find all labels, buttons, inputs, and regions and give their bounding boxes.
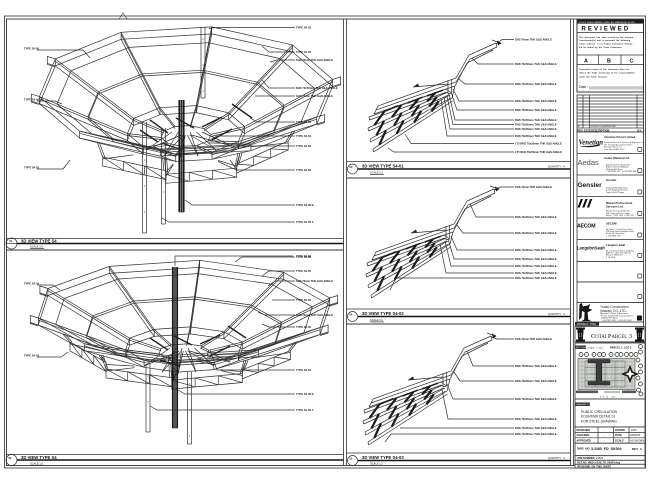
svg-text:SCALE 1:5: SCALE 1:5 [30, 461, 43, 465]
svg-text:DRAWING TITLE: DRAWING TITLE [576, 403, 594, 406]
svg-text:3D VIEW TYPE S4: 3D VIEW TYPE S4 [21, 238, 57, 243]
svg-text:Macau T 2837 2623 F 2837 2: Macau T 2837 2623 F 2837 2621 [606, 215, 635, 217]
svg-text:TYPE S4-05 A: TYPE S4-05 A [296, 220, 314, 224]
svg-text:4: 4 [599, 354, 600, 356]
svg-text:Gensler: Gensler [606, 178, 617, 182]
svg-text:Aedas: Aedas [578, 158, 600, 167]
svg-text:5: 5 [603, 354, 604, 356]
svg-text:RHS 70x50mm THK G&S ANGLE: RHS 70x50mm THK G&S ANGLE [515, 426, 557, 430]
svg-text:(Macau) CO. LTD.: (Macau) CO. LTD. [600, 309, 627, 313]
svg-text:Venetian Orient Limited: Venetian Orient Limited [604, 135, 636, 139]
svg-text:RHS 70x50mm THK G&S ANGLE: RHS 70x50mm THK G&S ANGLE [515, 127, 557, 131]
svg-text:SCALE 1:2: SCALE 1:2 [370, 462, 383, 466]
svg-text:SHS 70mm THK G&S ANGLE: SHS 70mm THK G&S ANGLE [296, 313, 333, 317]
svg-text:A: A [584, 59, 588, 65]
svg-text:03: 03 [349, 165, 352, 169]
svg-text:TYPE S4-04: TYPE S4-04 [296, 134, 311, 138]
svg-text:RHS 70x50mm THK G&S ANGLE: RHS 70x50mm THK G&S ANGLE [515, 99, 557, 103]
svg-text:TYPE S4-05 B: TYPE S4-05 B [296, 392, 314, 396]
svg-text:RHS 70x50mm THK G&S ANGLE: RHS 70x50mm THK G&S ANGLE [515, 62, 557, 66]
svg-text:Consultant(s)(s) and is acc: Consultant(s)(s) and is accorded the fol… [579, 39, 631, 42]
svg-text:04/03/15: 04/03/15 [630, 433, 641, 437]
svg-text:SCALE 1:2: SCALE 1:2 [370, 170, 383, 174]
svg-text:TYPE S4-02: TYPE S4-02 [24, 282, 39, 286]
svg-text:PUBLIC CIRCULATION: PUBLIC CIRCULATION [581, 410, 617, 414]
svg-text:SCALE 1:2: SCALE 1:2 [370, 318, 383, 322]
svg-text:TYPE S4-03: TYPE S4-03 [24, 354, 39, 358]
svg-text:3D VIEW TYPE S4-02: 3D VIEW TYPE S4-02 [362, 311, 404, 316]
svg-text:SCALE: SCALE [615, 439, 624, 443]
svg-text:TYPE S4-03: TYPE S4-03 [296, 120, 311, 124]
svg-text:FOR STEEL DRAWING: FOR STEEL DRAWING [581, 419, 617, 423]
svg-text:B: B [607, 59, 611, 65]
svg-text:REVIEWED: REVIEWED [582, 27, 631, 33]
svg-text:RHS 70x50mm THK G&S ANGLE: RHS 70x50mm THK G&S ANGLE [515, 264, 557, 268]
svg-text:RHS 70x50mm THK G&S ANGLE: RHS 70x50mm THK G&S ANGLE [515, 215, 557, 219]
svg-text:KEY PLAN: KEY PLAN [576, 346, 587, 349]
svg-text:under the Trade Contract.: under the Trade Contract. [579, 75, 608, 78]
svg-text:02: 02 [8, 456, 11, 460]
svg-text:LangdonSeah: LangdonSeah [577, 246, 605, 251]
svg-text:REV A: REV A [632, 447, 643, 451]
svg-text:DESIGNED: DESIGNED [577, 428, 591, 432]
svg-text:TYPE S4-03: TYPE S4-03 [24, 166, 39, 170]
svg-text:Consultant review of this: Consultant review of this document does … [579, 68, 630, 71]
svg-text:TYPE S4-05: TYPE S4-05 [296, 269, 311, 273]
svg-text:RHS 70x50mm THK G&S ANGLE: RHS 70x50mm THK G&S ANGLE [515, 108, 557, 112]
svg-text:3D VIEW TYPE S4-03: 3D VIEW TYPE S4-03 [362, 455, 404, 460]
svg-text:TYPE S4-05 B: TYPE S4-05 B [296, 203, 314, 207]
svg-text:04: 04 [349, 312, 352, 316]
svg-text:T +853 2833 1113 F +853 2830: T +853 2833 1113 F +853 2830 3811 [606, 171, 636, 173]
svg-text:PARCEL 1, LOT 2: PARCEL 1, LOT 2 [610, 346, 632, 350]
svg-text:SHS 70mm THK G&S ANGLE: SHS 70mm THK G&S ANGLE [296, 94, 333, 98]
svg-text:6: 6 [610, 354, 611, 356]
svg-text:3-SUB_FD_SK004: 3-SUB_FD_SK004 [591, 447, 622, 451]
svg-text:Services Ltd.: Services Ltd. [606, 204, 624, 208]
svg-text:TYPE S4-05 A: TYPE S4-05 A [296, 408, 314, 412]
svg-text:DATE: DATE [615, 433, 622, 437]
svg-text:QUANTITY : 4: QUANTITY : 4 [548, 164, 565, 168]
svg-text:DO NOT SCALE DRAWING. VERIFY A: DO NOT SCALE DRAWING. VERIFY ALL DIMENSI… [579, 21, 636, 24]
svg-text:Langdon Seah: Langdon Seah [606, 243, 626, 247]
svg-text:TYPE S4-04: TYPE S4-04 [296, 368, 311, 372]
svg-text:PROJECT TITLE: PROJECT TITLE [577, 323, 596, 326]
svg-text:T +853 2875 3339 F +853 2875: T +853 2875 3339 F +853 2875 3367 [601, 320, 632, 322]
svg-text:QUANTITY : 4: QUANTITY : 4 [548, 312, 565, 316]
svg-text:RHS 70x50mm THK G&S ANGLE: RHS 70x50mm THK G&S ANGLE [515, 432, 557, 436]
svg-text:TYPE S4-05: TYPE S4-05 [24, 47, 39, 51]
svg-text:RHS 70x50mm THK G&S ANGLE: RHS 70x50mm THK G&S ANGLE [515, 397, 557, 401]
svg-text:RHS 70x50mm THK G&S ANGLE: RHS 70x50mm THK G&S ANGLE [515, 271, 557, 275]
svg-text:RHS 70x50mm THK G&S ANGLE: RHS 70x50mm THK G&S ANGLE [515, 231, 557, 235]
svg-text:TYPE S4-02: TYPE S4-02 [24, 98, 39, 102]
svg-text:AS SHOWN: AS SHOWN [630, 439, 644, 443]
svg-text:RHS 70x50mm THK G&S ANGLE: RHS 70x50mm THK G&S ANGLE [515, 82, 557, 86]
svg-text:RHS 70x50mm THK G&S ANGLE: RHS 70x50mm THK G&S ANGLE [515, 364, 557, 368]
svg-text:RHS 70x50mm THK G&S ANGLE: RHS 70x50mm THK G&S ANGLE [515, 257, 557, 261]
svg-text:L75 RHS 70x50mm THK G&S ANGLE: L75 RHS 70x50mm THK G&S ANGLE [515, 142, 562, 146]
svg-text:COTAI PARCEL 3: COTAI PARCEL 3 [591, 333, 633, 340]
svg-text:01: 01 [9, 239, 12, 243]
svg-text:-: - [604, 440, 605, 443]
svg-text:REVISIONS ON THIS SHEET: REVISIONS ON THIS SHEET [577, 465, 612, 468]
svg-text:JOB NUMBER: JOB NUMBER [577, 456, 595, 460]
svg-text:3: 3 [593, 354, 594, 356]
svg-text:05: 05 [349, 456, 352, 460]
svg-text:SHS 70mm THK G&S ANGLE: SHS 70mm THK G&S ANGLE [515, 38, 552, 42]
svg-text:TYPE S4-03: TYPE S4-03 [296, 168, 311, 172]
svg-text:relieve the Trade Contracto: relieve the Trade Contractor of his resp… [579, 72, 636, 75]
svg-text:SHS 70mm THK G&S ANGLE: SHS 70mm THK G&S ANGLE [296, 279, 333, 283]
svg-text:APPROVED: APPROVED [577, 439, 592, 443]
svg-text:SHS 70mm THK G&S ANGLE: SHS 70mm THK G&S ANGLE [515, 337, 552, 341]
svg-text:RHS 70x50mm THK G&S ANGLE: RHS 70x50mm THK G&S ANGLE [296, 86, 338, 90]
svg-text:TYPE S4-02: TYPE S4-02 [296, 254, 311, 258]
svg-text:1: 1 [580, 354, 581, 356]
svg-text:QUANTITY : 4: QUANTITY : 4 [548, 456, 565, 460]
svg-text:SCALE 1 : 7500: SCALE 1 : 7500 [588, 346, 604, 349]
svg-text:C: C [630, 59, 634, 65]
svg-text:Date :: Date : [579, 85, 588, 89]
svg-text:RHS 70x50mm THK G&S ANGLE: RHS 70x50mm THK G&S ANGLE [515, 417, 557, 421]
svg-text:CHECKED: CHECKED [577, 433, 590, 437]
svg-text:TYPE S4-03: TYPE S4-03 [296, 26, 311, 30]
svg-text:F 28 38 28: F 28 38 28 [606, 257, 615, 259]
svg-text:2: 2 [586, 354, 587, 356]
svg-text:DAD: DAD [631, 428, 637, 432]
svg-text:SHS 70mm THK G&S ANGLE: SHS 70mm THK G&S ANGLE [515, 185, 552, 189]
svg-text:T +852 2828 5757: T +852 2828 5757 [606, 235, 621, 237]
svg-text:Taipa, Macao SAR, P.R.C.: Taipa, Macao SAR, P.R.C. [604, 148, 625, 151]
svg-text:status referred to in Pr: status referred to in Project Procedure … [579, 43, 633, 46]
svg-text:-: - [604, 434, 605, 437]
svg-text:3D VIEW TYPE S4: 3D VIEW TYPE S4 [21, 455, 57, 460]
svg-text:21520: 21520 [596, 456, 604, 460]
svg-text:AECOM: AECOM [577, 224, 595, 230]
svg-text:-: - [604, 429, 605, 432]
svg-text:RHS 70x50mm THK G&S ANGLE: RHS 70x50mm THK G&S ANGLE [515, 118, 557, 122]
svg-text:TYPE S4-03: TYPE S4-03 [296, 144, 311, 148]
svg-text:Tokyo 106-0032 Japan: Tokyo 106-0032 Japan [606, 192, 624, 194]
svg-text:RHS 70x50mm THK G&S ANGLE: RHS 70x50mm THK G&S ANGLE [515, 276, 557, 280]
svg-text:Gensler: Gensler [578, 182, 603, 189]
svg-text:3D VIEW TYPE S4-01: 3D VIEW TYPE S4-01 [362, 164, 404, 169]
svg-text:0 10 20 40 m: 0 10 20 40 m [600, 397, 616, 399]
svg-text:RHS 70x50mm THK G&S ANGLE: RHS 70x50mm THK G&S ANGLE [515, 123, 557, 127]
svg-text:RHS 70x50mm THK G&S ANGLE: RHS 70x50mm THK G&S ANGLE [515, 134, 557, 138]
svg-text:ISSUED FOR APPROVAL: ISSUED FOR APPROVAL [591, 125, 617, 128]
svg-text:FOUNTAIN DETAIL 01: FOUNTAIN DETAIL 01 [581, 415, 615, 419]
svg-text:AECOM: AECOM [606, 222, 617, 226]
svg-text:This document has been rev: This document has been revised by the re… [579, 36, 633, 39]
svg-text:Aedas (Macau) Ltd.: Aedas (Macau) Ltd. [604, 156, 630, 160]
svg-text:SCALE 1:5: SCALE 1:5 [30, 245, 43, 249]
svg-text:RHS 70x50mm THK G&S ANGLE: RHS 70x50mm THK G&S ANGLE [515, 248, 557, 252]
svg-text:RHS 70x50mm THK G&S ANGLE: RHS 70x50mm THK G&S ANGLE [515, 379, 557, 383]
svg-text:DRAWN: DRAWN [615, 428, 625, 432]
svg-text:TYPE S4-05: TYPE S4-05 [296, 50, 311, 54]
svg-text:TYPE S4-02: TYPE S4-02 [296, 298, 311, 302]
svg-text:SHS 70mm THK G&S ANGLE: SHS 70mm THK G&S ANGLE [296, 58, 333, 62]
svg-text:TYPE S4-02: TYPE S4-02 [296, 325, 311, 329]
svg-text:5.4 for action by the Tra: 5.4 for action by the Trade Contractor. [579, 46, 622, 49]
svg-text:L75 RHS 70x50mm THK G&S ANGLE: L75 RHS 70x50mm THK G&S ANGLE [515, 150, 562, 154]
svg-text:DWG NO: DWG NO [577, 447, 590, 451]
